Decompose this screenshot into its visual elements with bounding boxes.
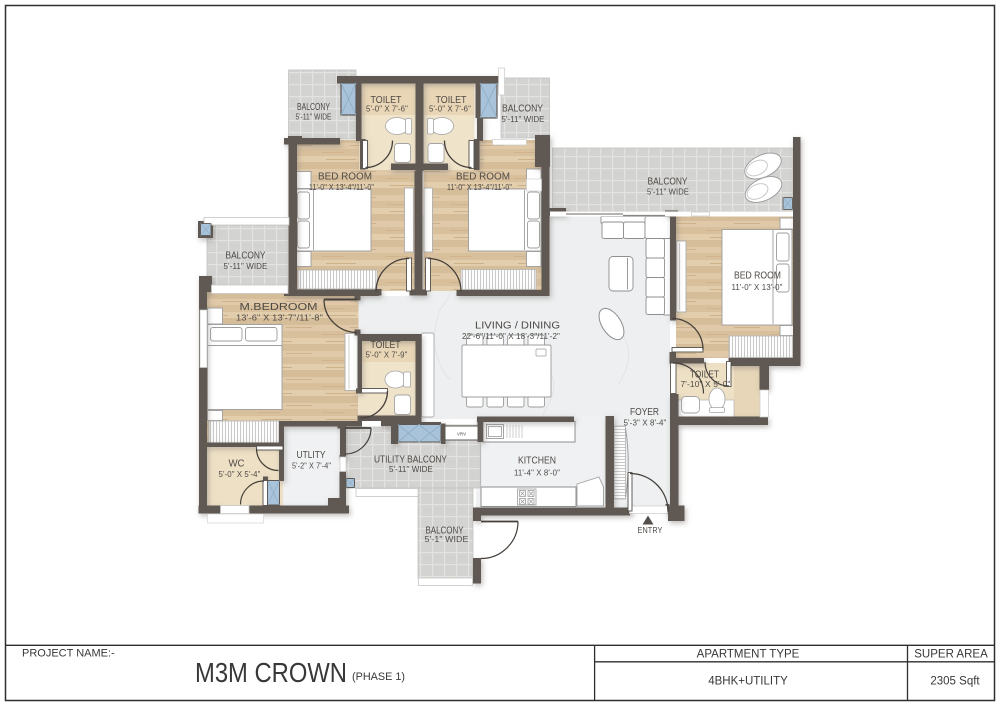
svg-text:5'-3" X 8'-4": 5'-3" X 8'-4" <box>624 419 667 428</box>
svg-text:11'-0" X 13'-4"/11'-0": 11'-0" X 13'-4"/11'-0" <box>309 183 374 192</box>
svg-text:BALCONY: BALCONY <box>226 251 266 262</box>
svg-text:TOILET: TOILET <box>371 340 401 351</box>
svg-text:4BHK+UTILITY: 4BHK+UTILITY <box>708 676 788 688</box>
svg-text:13'-6" X 13'-7"/11'-8": 13'-6" X 13'-7"/11'-8" <box>236 314 323 323</box>
svg-text:5'-11" WIDE: 5'-11" WIDE <box>389 465 433 474</box>
svg-text:TOILET: TOILET <box>690 370 719 381</box>
svg-text:BALCONY: BALCONY <box>297 102 330 113</box>
svg-text:5'-11" WIDE: 5'-11" WIDE <box>647 188 689 197</box>
svg-text:M.BEDROOM: M.BEDROOM <box>240 302 318 313</box>
svg-text:5'-11" WIDE: 5'-11" WIDE <box>296 113 332 122</box>
svg-text:5'-0" X 7'-6": 5'-0" X 7'-6" <box>366 105 408 114</box>
svg-text:LIVING / DINING: LIVING / DINING <box>475 321 560 332</box>
svg-text:22'-6"/11'-0" X 18'-3"/11'-2": 22'-6"/11'-0" X 18'-3"/11'-2" <box>462 332 560 341</box>
svg-text:WC: WC <box>229 459 245 470</box>
svg-text:5'-0" X 7'-6": 5'-0" X 7'-6" <box>429 105 471 114</box>
svg-text:7'-10" X 5'-0": 7'-10" X 5'-0" <box>681 380 731 389</box>
svg-text:PROJECT NAME:-: PROJECT NAME:- <box>22 648 115 660</box>
svg-text:BALCONY: BALCONY <box>502 104 543 115</box>
svg-text:5'-2" X 7'-4": 5'-2" X 7'-4" <box>292 462 331 471</box>
svg-text:BED ROOM: BED ROOM <box>318 172 372 183</box>
svg-text:VRV: VRV <box>457 432 466 437</box>
svg-text:SUPER AREA: SUPER AREA <box>914 649 988 661</box>
svg-text:11'-0" X 13'-4"/11'-0": 11'-0" X 13'-4"/11'-0" <box>447 183 512 192</box>
svg-text:UTILITY BALCONY: UTILITY BALCONY <box>374 455 447 466</box>
svg-text:11'-4" X 8'-0": 11'-4" X 8'-0" <box>514 469 560 478</box>
svg-text:M3M CROWN: M3M CROWN <box>195 657 347 688</box>
svg-text:ENTRY: ENTRY <box>638 526 664 535</box>
svg-text:UTLITY: UTLITY <box>297 450 326 461</box>
svg-text:BED ROOM: BED ROOM <box>734 271 781 282</box>
svg-text:5'-0" X 5'-4": 5'-0" X 5'-4" <box>219 470 261 479</box>
svg-text:APARTMENT TYPE: APARTMENT TYPE <box>697 649 800 661</box>
svg-text:(PHASE 1): (PHASE 1) <box>352 671 405 683</box>
svg-text:11'-0" X 13'-0": 11'-0" X 13'-0" <box>732 283 783 292</box>
svg-text:2305 Sqft: 2305 Sqft <box>930 676 980 688</box>
svg-text:5'-11" WIDE: 5'-11" WIDE <box>502 115 545 124</box>
svg-text:BALCONY: BALCONY <box>648 177 688 188</box>
svg-text:5'-0" X 7'-9": 5'-0" X 7'-9" <box>366 351 408 360</box>
svg-text:KITCHEN: KITCHEN <box>518 456 556 467</box>
svg-text:BED ROOM: BED ROOM <box>456 172 510 183</box>
svg-text:5'-11" WIDE: 5'-11" WIDE <box>224 262 268 271</box>
svg-text:FOYER: FOYER <box>630 407 659 418</box>
svg-text:5'-1" WIDE: 5'-1" WIDE <box>425 535 469 544</box>
